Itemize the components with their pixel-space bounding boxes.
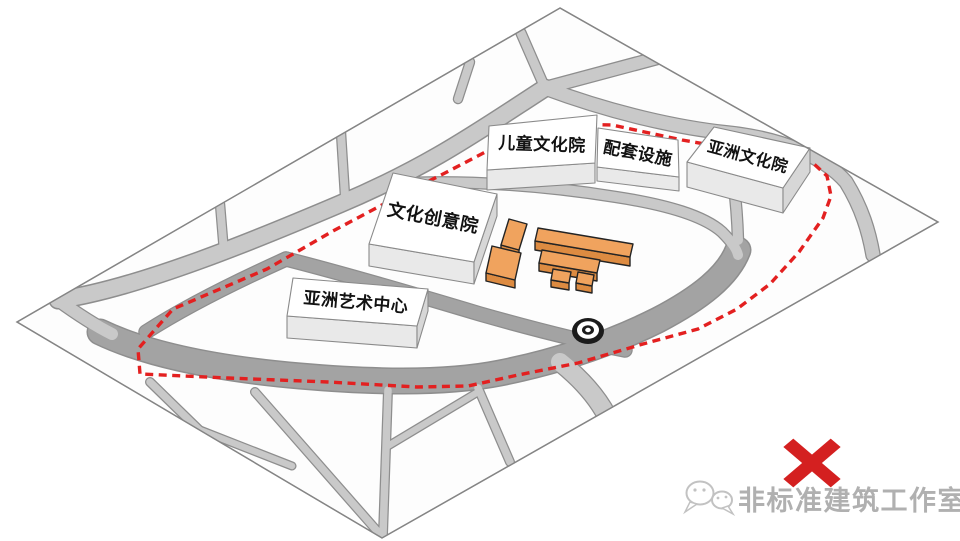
building-asia-art-center: 亚洲艺术中心	[287, 278, 428, 348]
building-label: 儿童文化院	[497, 132, 586, 155]
watermark-text: 非标准建筑工作室	[738, 485, 960, 516]
watermark: 非标准建筑工作室	[685, 482, 960, 517]
site-plan-canvas: 儿童文化院 配套设施 亚洲文化院 文化创意院 亚洲艺术中心	[0, 0, 960, 541]
building-children-culture-institute: 儿童文化院	[487, 115, 597, 190]
site-plan-diagram: 儿童文化院 配套设施 亚洲文化院 文化创意院 亚洲艺术中心	[0, 0, 960, 541]
building-culture-creative-institute: 文化创意院	[369, 173, 497, 284]
target-marker-icon	[572, 318, 604, 344]
wechat-icon	[685, 482, 733, 515]
